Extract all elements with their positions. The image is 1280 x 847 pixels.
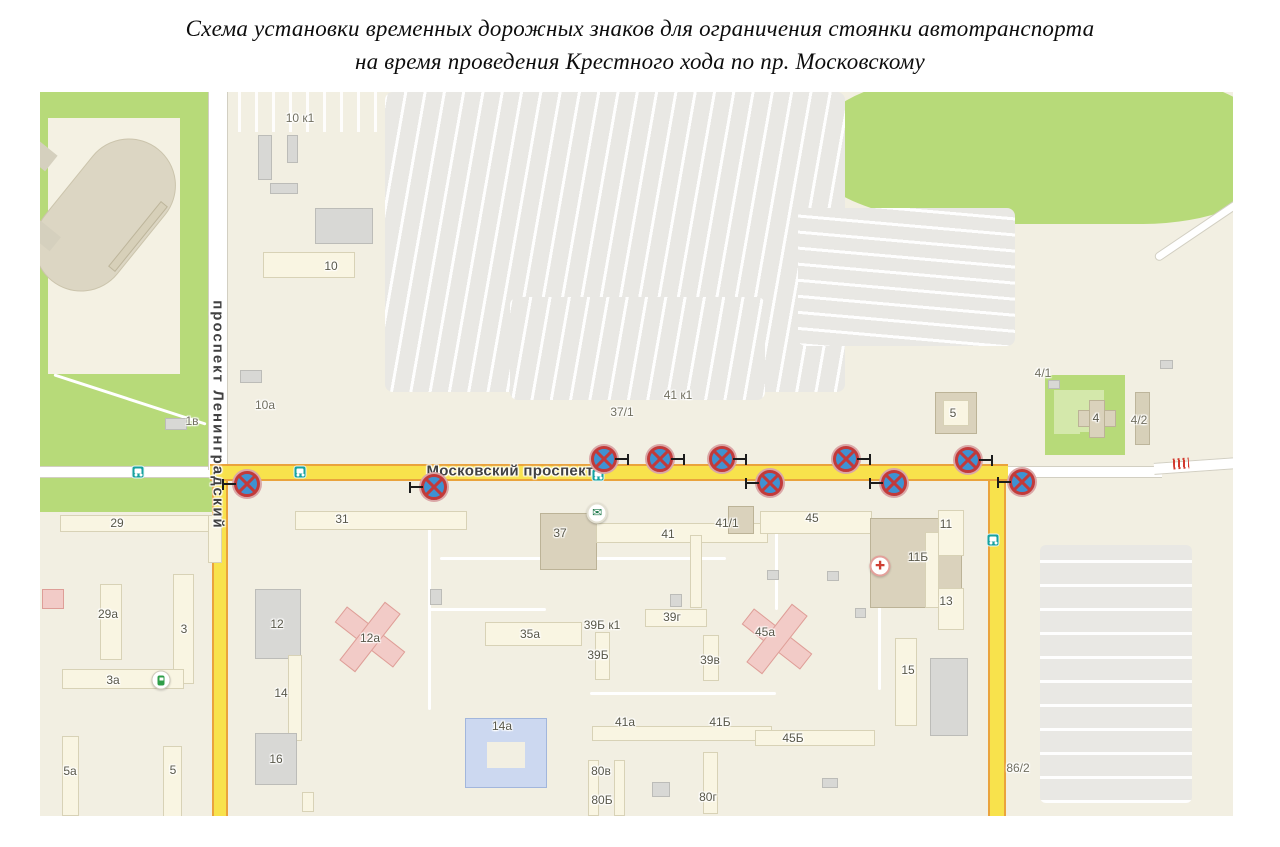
map-label: 29 (110, 516, 123, 530)
no-stopping-sign (647, 446, 673, 472)
map-label: 45Б (782, 731, 803, 745)
map-shape-pale (302, 792, 314, 812)
map-label: 14а (492, 719, 512, 733)
sign-bracket (745, 478, 747, 489)
map-label: 31 (335, 512, 348, 526)
map-label: 80в (591, 764, 611, 778)
sign-bracket (870, 482, 883, 484)
map-label: 12 (270, 617, 283, 631)
parking-lot-south (1040, 545, 1192, 803)
map-label: 10а (255, 398, 275, 412)
map-label: 41/1 (715, 516, 738, 530)
no-stopping-sign (833, 446, 859, 472)
sign-bracket (991, 455, 993, 466)
map-label: 3 (181, 622, 188, 636)
map-label: 16 (269, 752, 282, 766)
bus-stop-icon[interactable] (294, 466, 307, 479)
no-stopping-sign (421, 474, 447, 500)
map-label: 11Б (908, 550, 928, 564)
map-label: 3а (106, 673, 119, 687)
map-label: 41 (661, 527, 674, 541)
map-label: 37 (553, 526, 566, 540)
no-stopping-sign (709, 446, 735, 472)
map-shape-gray (165, 418, 187, 430)
map-label: 41а (615, 715, 635, 729)
map-shape-parking (798, 208, 1015, 346)
crossing-marker (1173, 457, 1190, 469)
map-shape-gray (1160, 360, 1173, 369)
map-label: 37/1 (610, 405, 633, 419)
street-label-prospekt-leningradsky: проспект Ленинградский (210, 300, 227, 530)
park-area-northeast (808, 92, 1233, 224)
map-shape-gray (652, 782, 670, 797)
map-shape-pink (42, 589, 64, 609)
map-shape-gray (287, 135, 298, 163)
map-label: 4/1 (1035, 366, 1052, 380)
map-label: 5 (950, 406, 957, 420)
street-label-moskovsky-prospekt: Московский проспект (426, 463, 593, 480)
building-10 (263, 252, 355, 278)
map-label: 15 (901, 663, 914, 677)
map-shape-gray (827, 571, 839, 581)
map-shape-gray (670, 594, 682, 607)
route-highlight-right (988, 466, 1006, 816)
map-shape-path (878, 606, 881, 690)
map-label: 13 (939, 594, 952, 608)
map-shape-parking (510, 297, 765, 400)
sign-bracket (410, 486, 423, 488)
map-label: 11 (940, 517, 952, 531)
map-shape-pale (755, 730, 875, 746)
map-label: 35а (520, 627, 540, 641)
map-shape-pale (703, 752, 718, 814)
map-label: 10 к1 (286, 111, 315, 125)
sign-bracket (997, 477, 999, 488)
no-stopping-sign (1009, 469, 1035, 495)
map-shape-gray (315, 208, 373, 244)
fuel-station-icon[interactable] (152, 671, 171, 690)
map-shape-gray (1048, 380, 1060, 389)
sign-bracket (627, 454, 629, 465)
map-shape-gray (930, 658, 968, 736)
no-stopping-sign (955, 447, 981, 473)
no-stopping-sign (757, 470, 783, 496)
sign-bracket (745, 454, 747, 465)
map-label: 4 (1093, 411, 1100, 425)
sign-bracket (223, 483, 236, 485)
map-label: 80Б (591, 793, 612, 807)
map-shape-pale (295, 511, 467, 530)
map-shape-gray (240, 370, 262, 383)
title-line-1: Схема установки временных дорожных знако… (0, 12, 1280, 45)
map-label: 4/2 (1131, 413, 1148, 427)
page: Схема установки временных дорожных знако… (0, 0, 1280, 847)
sign-bracket (409, 482, 411, 493)
map-label: 39Б к1 (584, 618, 620, 632)
sign-bracket (222, 479, 224, 490)
map-label: 10 (324, 259, 337, 273)
map-label: 14 (274, 686, 287, 700)
map-label: 39в (700, 653, 720, 667)
map-label: 41 к1 (664, 388, 693, 402)
map-shape-pale (895, 638, 917, 726)
title-line-2: на время проведения Крестного хода по пр… (0, 45, 1280, 78)
map-label: 5а (63, 764, 76, 778)
road-east-bend (1154, 457, 1233, 475)
map-label: 39г (663, 610, 681, 624)
map-label: 86/2 (1006, 761, 1029, 775)
map-shape-gray (822, 778, 838, 788)
sign-bracket (746, 482, 759, 484)
bus-stop-icon[interactable] (132, 466, 145, 479)
map-label: 12а (360, 631, 380, 645)
map-shape-gray (258, 135, 272, 180)
map-shape-pale (100, 584, 122, 660)
sign-bracket (869, 454, 871, 465)
map-shape-pale (288, 655, 302, 741)
map-label: 5 (170, 763, 177, 777)
map-shape-gray (430, 589, 442, 605)
map-shape-path (428, 518, 431, 710)
map-shape-pale (925, 532, 939, 608)
map-label: 45 (805, 511, 818, 525)
no-stopping-sign (234, 471, 260, 497)
road-west (40, 466, 218, 478)
map-shape-gray (270, 183, 298, 194)
pharmacy-icon[interactable]: ✚ (870, 556, 891, 577)
map-shape-pale (690, 535, 702, 608)
page-title: Схема установки временных дорожных знако… (0, 12, 1280, 78)
no-stopping-sign (591, 446, 617, 472)
bus-stop-icon[interactable] (987, 534, 1000, 547)
map-label: 29а (98, 607, 118, 621)
no-stopping-sign (881, 470, 907, 496)
map-shape-path (590, 692, 776, 695)
sign-bracket (998, 481, 1011, 483)
map-label: 45а (755, 625, 775, 639)
building-37 (540, 513, 597, 570)
map-canvas[interactable]: Московский проспектпроспект Ленинградски… (40, 92, 1233, 816)
map-shape-path (430, 608, 546, 611)
map-shape-hole (487, 742, 525, 768)
post-office-icon[interactable]: ✉ (587, 503, 608, 524)
map-shape-pale (163, 746, 182, 816)
sign-bracket (869, 478, 871, 489)
map-label: 1в (185, 414, 198, 428)
map-shape-gray (855, 608, 866, 618)
map-shape-pale (60, 515, 222, 532)
map-label: 39Б (587, 648, 608, 662)
map-shape-pale (614, 760, 625, 816)
map-shape-gray (767, 570, 779, 580)
sign-bracket (683, 454, 685, 465)
map-label: 80г (699, 790, 717, 804)
map-label: 41Б (709, 715, 730, 729)
